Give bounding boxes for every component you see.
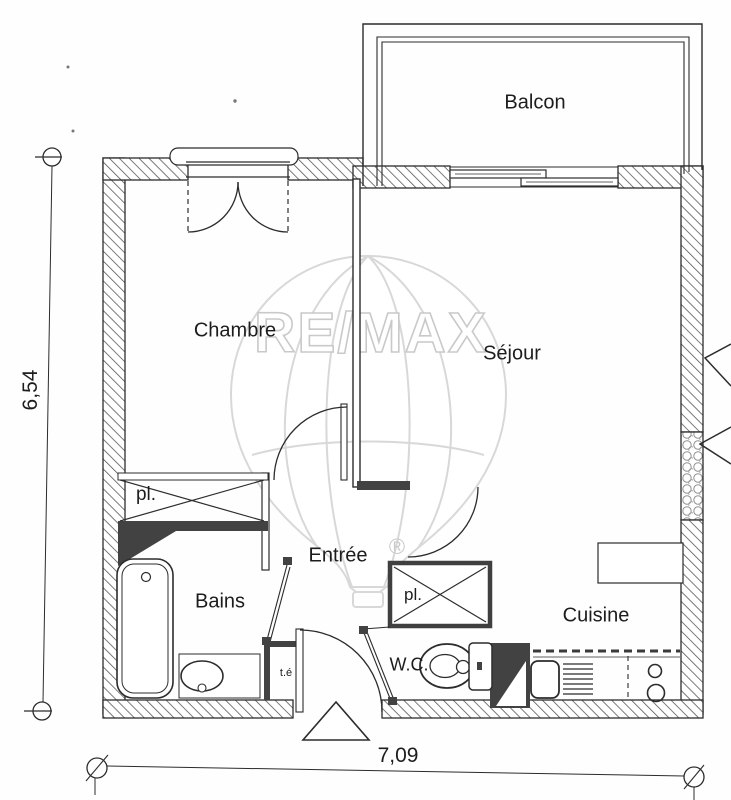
burner-small bbox=[649, 665, 662, 678]
sliding-bay-window bbox=[450, 167, 618, 187]
room-label-balcon: Balcon bbox=[504, 92, 565, 115]
registered-trademark-symbol: ® bbox=[389, 534, 405, 559]
chambre-window bbox=[170, 148, 298, 233]
wc-door-jamb-top bbox=[359, 626, 368, 634]
closet-label-wc: pl. bbox=[404, 585, 422, 605]
washbasin-drain bbox=[198, 684, 206, 692]
wall-bottom-left bbox=[103, 700, 293, 718]
wall-chambre-sejour bbox=[353, 179, 360, 487]
closet-label-chambre: pl. bbox=[136, 484, 156, 506]
room-label-wc: W.C. bbox=[390, 655, 429, 676]
watermark-brand-text: RE/MAX bbox=[254, 301, 488, 365]
bathtub-drain bbox=[142, 573, 151, 582]
bains-door-jamb-top bbox=[283, 557, 292, 565]
orientation-arrow-upper bbox=[705, 344, 731, 386]
entrance-door-leaf bbox=[296, 629, 303, 712]
dimension-height-value: 6,54 bbox=[19, 370, 43, 411]
orientation-arrow-lower bbox=[700, 427, 731, 464]
dimension-width-value: 7,09 bbox=[378, 744, 419, 768]
utility-label-te: t.é bbox=[280, 667, 292, 679]
burner-large bbox=[648, 685, 665, 702]
orientation-arrows bbox=[700, 344, 731, 464]
wall-right-upper bbox=[681, 166, 703, 432]
room-label-cuisine: Cuisine bbox=[563, 605, 630, 628]
te-closet-wall-left bbox=[264, 641, 270, 700]
wall-right-textured bbox=[681, 432, 703, 520]
room-label-entree: Entrée bbox=[309, 545, 368, 568]
room-label-sejour: Séjour bbox=[483, 343, 541, 366]
sejour-counter-table bbox=[598, 543, 683, 583]
floorplan-page: RE/MAX ® bbox=[0, 0, 731, 800]
wc-door-jamb-bottom bbox=[388, 697, 397, 705]
wall-closet-bottom-dark bbox=[118, 521, 268, 531]
wall-stub-sejour bbox=[357, 481, 410, 490]
room-label-bains: Bains bbox=[195, 591, 245, 614]
scan-specks bbox=[67, 66, 237, 133]
kitchen-drainboard bbox=[563, 664, 593, 694]
room-label-chambre: Chambre bbox=[194, 320, 276, 343]
toilet-flush-button bbox=[477, 662, 482, 670]
wall-top-sejour-left bbox=[353, 166, 450, 188]
kitchen-sink bbox=[531, 661, 559, 698]
entrance-marker-triangle bbox=[303, 702, 369, 740]
remax-watermark-balloon: RE/MAX ® bbox=[231, 256, 506, 607]
bains-door-jamb-bottom bbox=[262, 637, 271, 645]
wall-right-lower bbox=[681, 520, 703, 714]
chambre-closet-top bbox=[118, 473, 268, 480]
wall-bottom-right bbox=[382, 700, 703, 718]
chambre-door-leaf bbox=[341, 404, 347, 480]
entrance-door-swing bbox=[300, 630, 382, 712]
floorplan-drawing: RE/MAX ® bbox=[0, 0, 731, 800]
bains-door-leaf bbox=[267, 565, 287, 640]
dimension-line-vertical bbox=[43, 166, 52, 702]
wall-top-chambre-right bbox=[288, 158, 363, 180]
